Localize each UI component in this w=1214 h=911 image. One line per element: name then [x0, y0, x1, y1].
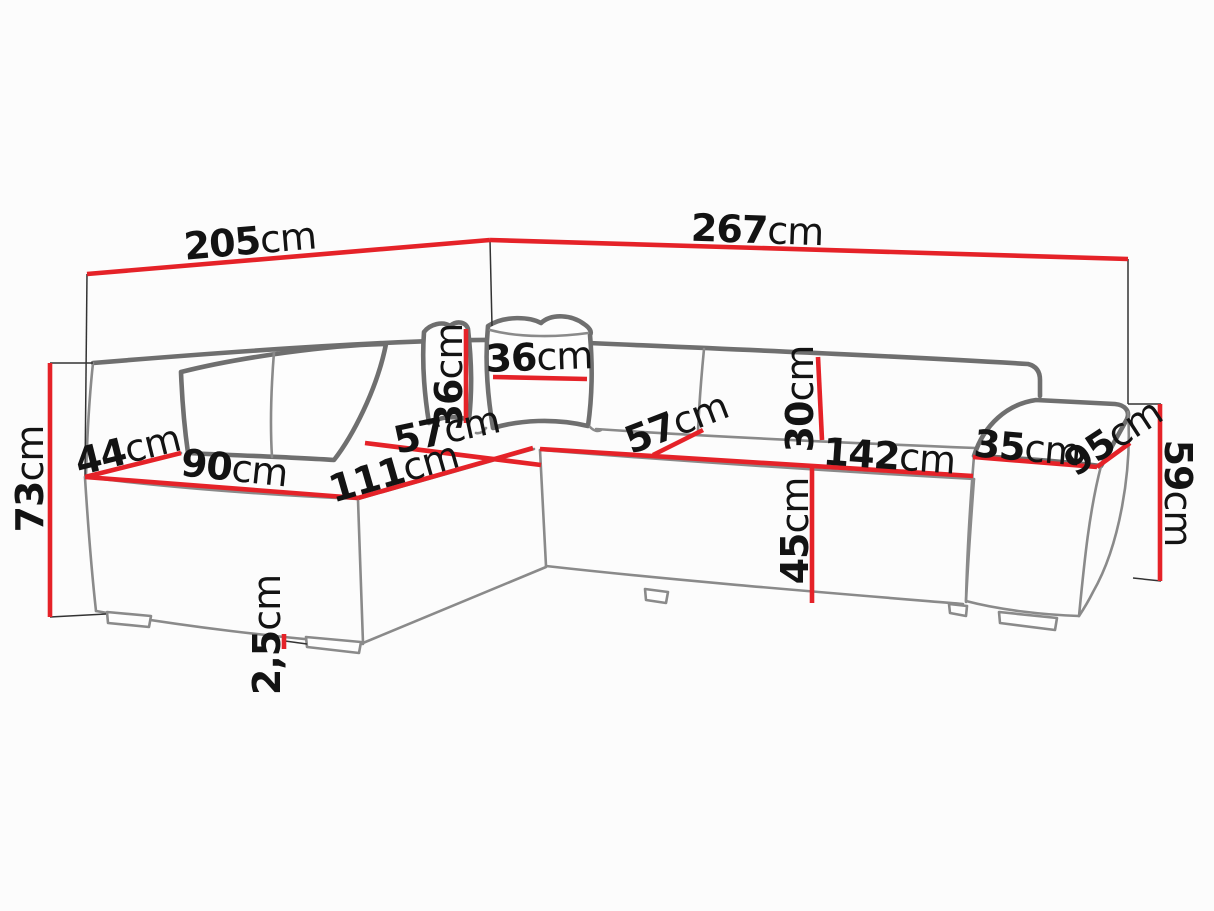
dim-label-pillow-width: 36cm — [485, 333, 593, 381]
dim-label-pillow-height: 36cm — [427, 324, 471, 431]
dim-label-leg-height: 2,5cm — [245, 575, 289, 695]
sofa-corner-left-vertical-edge — [358, 500, 363, 643]
extension-line — [50, 614, 106, 617]
dim-label-armrest-height: 59cm — [1157, 440, 1201, 547]
dim-label-backrest-height: 30cm — [778, 346, 822, 453]
sofa-foot — [107, 612, 151, 627]
dim-label-width-right: 267cm — [690, 205, 824, 254]
sofa-foot — [949, 604, 967, 616]
dim-label-seat-height: 45cm — [773, 478, 817, 585]
sofa-corner-bottom-edge — [363, 567, 546, 643]
sofa-dimension-diagram: 205cm 267cm 73cm 44cm 90cm 111cm 57cm 36… — [0, 0, 1214, 911]
dim-label-width-left: 205cm — [182, 213, 318, 268]
extension-line — [490, 240, 492, 326]
sofa-right-bottom-edge — [546, 566, 963, 604]
dim-label-seat-depth-right: 57cm — [618, 383, 733, 462]
sofa-front-corner-vertical-edge — [540, 450, 546, 566]
extension-line — [1133, 578, 1161, 581]
sofa-foot — [306, 637, 361, 653]
sofa-foot — [645, 589, 668, 603]
sofa-left-front-corner-edge — [85, 478, 96, 611]
dim-label-height-total: 73cm — [8, 426, 52, 533]
dim-label-front-right: 142cm — [822, 429, 957, 482]
